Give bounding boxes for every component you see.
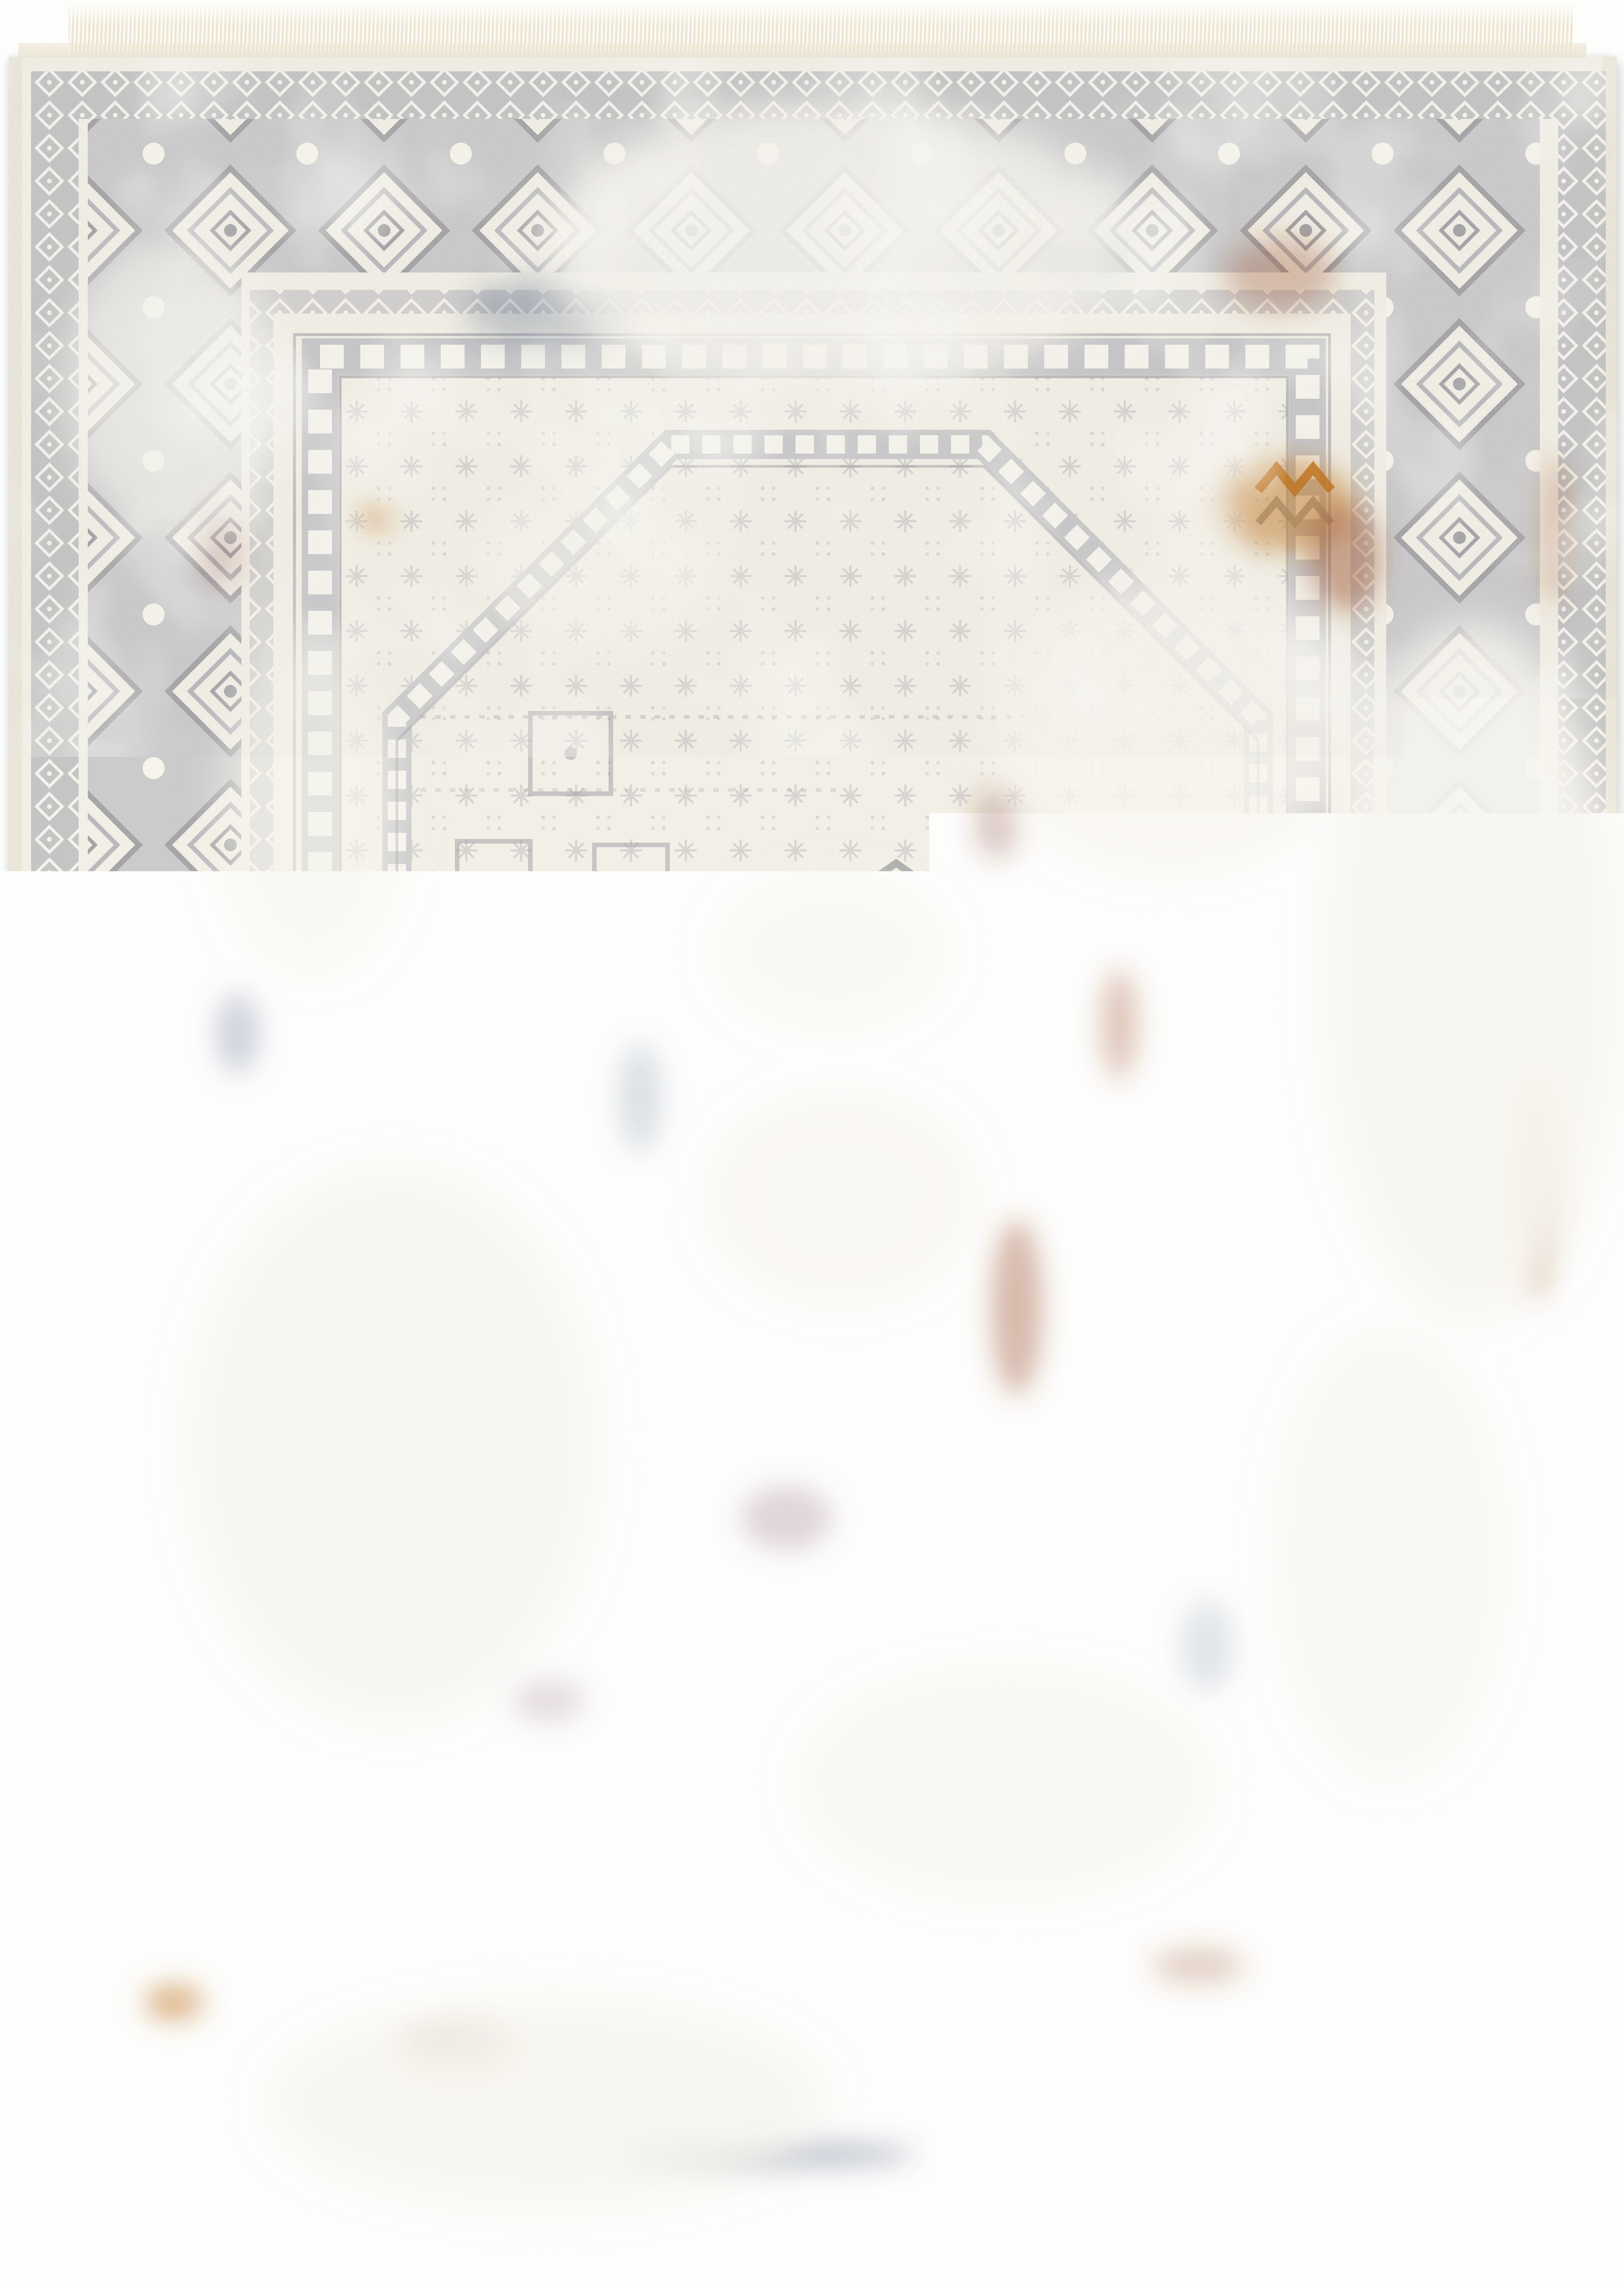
- photo-background: [0, 0, 1624, 2286]
- rug-photo: [0, 0, 1624, 2286]
- fringe-bottom: [32, 2275, 1513, 2286]
- grain-overlay: [9, 57, 1617, 2275]
- fringe-top: [69, 2, 1573, 53]
